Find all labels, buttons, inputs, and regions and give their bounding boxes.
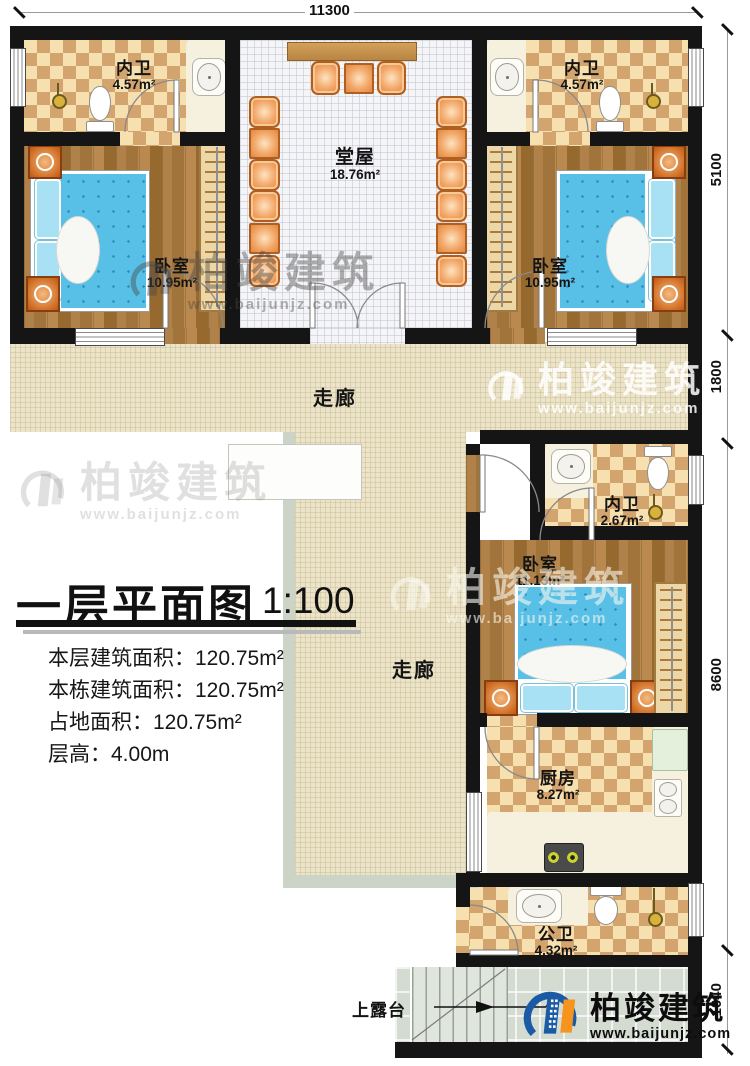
toilet (596, 86, 624, 132)
room-label-hall: 堂屋 18.76m² (315, 148, 395, 182)
armchair (436, 190, 467, 222)
floorplan: 11300 5100 1800 8600 1040 内卫 4.57m² 内卫 4… (0, 0, 750, 1066)
wall-segment (456, 873, 702, 887)
stool (436, 128, 467, 159)
watermark-url: www.baijunjz.com (80, 507, 272, 522)
window (688, 883, 704, 937)
sink (490, 58, 524, 96)
room-label-bedroom-bottom: 卧室 11.13m² (500, 556, 580, 588)
window (75, 328, 165, 346)
corridor-v-edge-bottom (283, 875, 478, 888)
room-label-bath-mid: 内卫 2.67m² (582, 496, 662, 528)
threshold (120, 132, 180, 146)
wall-hall-left (225, 26, 240, 344)
wall-right-lower (688, 344, 702, 1058)
baijun-logo-icon (522, 984, 584, 1051)
threshold (456, 907, 470, 953)
wall-segment (530, 444, 545, 526)
armchair (311, 61, 340, 95)
room-label-terrace: 上露台 (352, 996, 406, 1021)
baijun-logo-icon (18, 463, 72, 522)
fridge (652, 729, 688, 771)
info-land-area: 占地面积：120.75m² (48, 706, 242, 736)
wall-segment (466, 444, 480, 455)
logo-brand: 柏竣建筑 (590, 993, 731, 1024)
stool (249, 128, 280, 159)
window (688, 48, 704, 107)
dim-top-value: 11300 (305, 2, 354, 19)
stool (249, 223, 280, 254)
sideboard-table (287, 42, 417, 61)
wall-segment (530, 526, 702, 540)
sheet (57, 217, 99, 283)
toilet (590, 885, 622, 925)
title-underline (16, 620, 356, 627)
wall-segment (180, 132, 240, 146)
threshold (310, 328, 405, 344)
sink (192, 58, 226, 96)
window (10, 48, 26, 107)
window (466, 792, 482, 872)
dim-right-value: 1800 (708, 357, 725, 396)
pillow (35, 179, 61, 239)
nightstand (28, 145, 62, 179)
pillow (575, 684, 627, 712)
toilet (644, 446, 672, 490)
dim-right-value: 8600 (708, 655, 725, 694)
armchair (377, 61, 406, 95)
room-label-bath-right: 内卫 4.57m² (542, 60, 622, 92)
brand-logo: 柏竣建筑 www.baijunjz.com (522, 984, 731, 1051)
pillow (521, 684, 573, 712)
wall-hall-right (472, 26, 487, 344)
room-label-corridor-v: 走廊 (392, 654, 436, 683)
nightstand (652, 276, 686, 312)
dim-right-value: 5100 (708, 150, 725, 189)
stove (544, 843, 584, 872)
wall-segment (10, 328, 75, 344)
shower-pole (646, 94, 661, 109)
sheet (607, 217, 649, 283)
nightstand (26, 276, 60, 312)
bed (514, 583, 632, 715)
room-label-bath-left: 内卫 4.57m² (94, 60, 174, 92)
toilet (86, 86, 114, 132)
threshold (163, 328, 220, 344)
wall-segment (466, 512, 480, 713)
stairs (410, 964, 508, 1045)
sink (516, 889, 562, 923)
logo-url: www.baijunjz.com (590, 1026, 731, 1042)
wall-segment (480, 430, 702, 444)
wall-segment (456, 887, 470, 907)
threshold (530, 132, 590, 146)
armchair (249, 159, 280, 191)
armchair (436, 159, 467, 191)
stool (344, 63, 374, 94)
armchair (249, 255, 280, 287)
armchair (249, 96, 280, 128)
plan-scale: 1:100 (262, 580, 355, 622)
wall-segment (590, 132, 702, 146)
room-label-bath-public: 公卫 4.32m² (516, 926, 596, 958)
info-floor-area: 本层建筑面积：120.75m² (48, 642, 284, 672)
nightstand (652, 145, 686, 179)
wall-segment (537, 713, 702, 727)
room-label-bedroom-left: 卧室 10.95m² (132, 258, 212, 290)
nightstand (484, 680, 518, 716)
wall-segment (466, 713, 487, 727)
threshold (466, 455, 480, 512)
shower-pole (52, 94, 67, 109)
dim-line-top (18, 12, 697, 13)
title-underline-shadow (23, 630, 361, 634)
window (688, 455, 704, 505)
room-label-kitchen: 厨房 8.27m² (518, 770, 598, 802)
stool (436, 223, 467, 254)
wall-top (10, 26, 702, 40)
towel-pole (648, 912, 663, 927)
entry-steps-platform (228, 444, 362, 500)
pillow (649, 179, 675, 239)
sheet (518, 646, 626, 682)
armchair (436, 255, 467, 287)
dim-line-right (727, 30, 728, 1054)
wall-segment (635, 328, 702, 344)
info-building-area: 本栋建筑面积：120.75m² (48, 674, 284, 704)
room-label-bedroom-right: 卧室 10.95m² (510, 258, 590, 290)
window (547, 328, 637, 346)
wall-segment (10, 132, 120, 146)
threshold (490, 328, 545, 344)
kitchen-sink (654, 779, 682, 817)
wall-segment (472, 132, 530, 146)
info-floor-height: 层高：4.00m (48, 738, 169, 768)
sink (551, 449, 591, 484)
armchair (249, 190, 280, 222)
wardrobe (654, 582, 688, 716)
corridor-v-edge-left (283, 432, 295, 888)
armchair (436, 96, 467, 128)
room-label-corridor-h: 走廊 (313, 382, 357, 411)
